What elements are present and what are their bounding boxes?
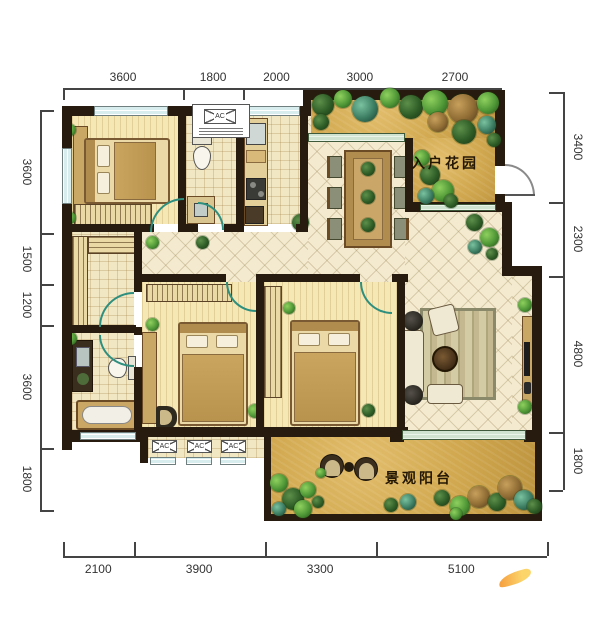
remote (524, 382, 531, 394)
dimension-label: 1500 (20, 245, 34, 272)
plant (380, 88, 400, 108)
plant (518, 400, 532, 414)
dimension-label: 2100 (85, 562, 112, 576)
garden-living-window (420, 204, 496, 211)
wardrobe (74, 204, 152, 225)
chair-seat (359, 463, 374, 479)
ledge-wall-left (140, 437, 148, 463)
plant (316, 468, 326, 478)
pouf (403, 311, 423, 331)
dimension-tick (134, 542, 136, 556)
window (186, 457, 212, 465)
plant (477, 92, 499, 114)
garden-wall-step (303, 90, 311, 116)
dimension-tick (63, 88, 65, 100)
plant (399, 95, 423, 119)
outer-wall-right (532, 266, 542, 442)
dimension-tick (549, 92, 563, 94)
dimension-label: 3000 (347, 70, 374, 84)
pillow (97, 172, 110, 194)
coffee-table (432, 346, 458, 372)
wall-row1-d (296, 224, 308, 232)
plant (478, 116, 496, 134)
cutting-board (246, 150, 266, 163)
plant (444, 194, 458, 208)
table-plant (361, 218, 375, 232)
plant (480, 228, 499, 247)
dimension-tick (243, 88, 245, 100)
window (62, 148, 72, 204)
plant (400, 494, 416, 510)
dimension-tick (265, 542, 267, 556)
wall-corridor-b (256, 274, 360, 282)
ac-unit: AC (204, 109, 236, 124)
blanket (114, 142, 156, 200)
dimension-label: 3600 (110, 70, 137, 84)
mirror (76, 347, 90, 367)
dimension-label: 4800 (571, 341, 585, 368)
dimension-tick (547, 542, 549, 556)
dimension-label: 2300 (571, 226, 585, 253)
plant (384, 498, 398, 512)
dimension-label: 5100 (448, 562, 475, 576)
ac-grill (199, 128, 243, 135)
dimension-label: 2000 (263, 70, 290, 84)
wall-closet-right-a (134, 232, 142, 292)
wall-closet-right-c (134, 367, 142, 437)
pillow (216, 335, 238, 348)
wall-bed2-bed3 (256, 282, 264, 429)
stool-seat (160, 410, 172, 425)
headboard (180, 324, 246, 333)
plant (518, 298, 532, 312)
wardrobe (88, 236, 136, 254)
dimension-tick (549, 432, 563, 434)
wardrobe (264, 286, 282, 398)
ac-unit: AC (152, 440, 177, 453)
burner (258, 191, 264, 197)
dimension-tick (376, 542, 378, 556)
dimension-line (563, 92, 565, 490)
dining-chair (394, 218, 409, 240)
plant (146, 236, 159, 249)
plant (450, 508, 462, 520)
wall-row1-b (184, 224, 198, 232)
plant (196, 236, 209, 249)
wall-row1-c (224, 224, 244, 232)
bedrooms-south-wall (140, 427, 408, 437)
dimension-label: 2700 (442, 70, 469, 84)
ac-unit-label: AC (228, 443, 240, 450)
dimension-tick (549, 490, 563, 492)
wall-bed3-living (397, 282, 405, 429)
entry-door-arc (505, 164, 535, 196)
plant (352, 96, 378, 122)
plant (428, 112, 448, 132)
ac-unit-label: AC (159, 443, 171, 450)
pillow (97, 145, 110, 167)
plant (487, 133, 501, 147)
wall-row1-a (62, 224, 154, 232)
plant (300, 482, 316, 498)
tub-basin (82, 406, 132, 424)
ac-unit: AC (221, 440, 246, 453)
dimension-label: 3900 (186, 562, 213, 576)
ac-unit: AC (187, 440, 212, 453)
wardrobe (72, 236, 88, 326)
dimension-label: 1800 (20, 466, 34, 493)
balcony-sliding-window (402, 430, 526, 440)
dimension-tick (40, 448, 54, 450)
window (94, 106, 168, 116)
dimension-tick (549, 276, 563, 278)
side-table (344, 462, 354, 472)
plant (272, 502, 286, 516)
headboard (292, 322, 358, 331)
step-wall-v (502, 202, 512, 276)
bathtub (76, 400, 138, 430)
wardrobe (146, 284, 232, 302)
wicker-chair (354, 457, 378, 481)
bed-master (84, 138, 170, 204)
pillow (186, 335, 208, 348)
dimension-label: 3400 (571, 134, 585, 161)
plant (452, 120, 476, 144)
plant (294, 500, 312, 518)
plant (362, 404, 375, 417)
plant (146, 318, 159, 331)
window (248, 106, 300, 116)
plant (312, 496, 324, 508)
dimension-label: 1200 (20, 292, 34, 319)
plant (466, 214, 483, 231)
bed2 (178, 322, 248, 426)
entry-door-leaf (505, 194, 535, 196)
plant (434, 490, 450, 506)
pouf (403, 385, 423, 405)
dining-chair (327, 187, 342, 209)
table-plant (361, 190, 375, 204)
plant (468, 240, 482, 254)
dining-chair (327, 218, 342, 240)
plant (527, 499, 542, 514)
window (80, 432, 136, 440)
plant (283, 302, 295, 314)
plant (486, 248, 498, 260)
stool (156, 406, 177, 429)
dining-chair (327, 156, 342, 178)
dimension-line (63, 556, 547, 558)
ac-unit-label: AC (214, 113, 226, 120)
wall-kitchen-dining (300, 116, 308, 232)
burner (250, 182, 256, 188)
dimension-tick (40, 110, 54, 112)
plant (418, 188, 434, 204)
dimension-tick (40, 233, 54, 235)
dresser (142, 332, 157, 424)
bathroom-vanity (72, 340, 93, 392)
brand-swoosh-logo (497, 568, 533, 589)
loveseat (427, 384, 463, 404)
ac-unit-label: AC (194, 443, 206, 450)
dimension-tick (40, 284, 54, 286)
dimension-tick (40, 325, 54, 327)
plant (313, 114, 329, 130)
chair-seat (325, 460, 340, 476)
wall-corridor-a (140, 274, 226, 282)
stove (246, 178, 266, 200)
table-plant (361, 162, 375, 176)
appliance (245, 206, 264, 224)
dimension-tick (183, 88, 185, 100)
tv (524, 342, 530, 376)
dimension-label: 3600 (20, 374, 34, 401)
entrance-garden-label: 入户花园 (411, 153, 479, 173)
dimension-tick (40, 510, 54, 512)
plant (312, 94, 334, 116)
window (150, 457, 176, 465)
blanket (182, 354, 244, 422)
dimension-label: 1800 (571, 448, 585, 475)
pillow (298, 333, 320, 346)
dimension-tick (63, 542, 65, 556)
bed3 (290, 320, 360, 426)
garden-wall-left-low (405, 138, 413, 212)
dimension-label: 3300 (307, 562, 334, 576)
plant (468, 486, 490, 508)
dimension-label: 1800 (200, 70, 227, 84)
balcony-garden-label: 景观阳台 (385, 468, 453, 488)
floor-plan-canvas: 3600180020003000270021003900330051003600… (0, 0, 600, 617)
wall-corridor-c (392, 274, 408, 282)
window (220, 457, 246, 465)
headboard (86, 140, 95, 202)
garden-dining-window (308, 133, 405, 142)
dimension-tick (549, 202, 563, 204)
dimension-label: 3600 (20, 158, 34, 185)
plant (334, 90, 352, 108)
pillow (328, 333, 350, 346)
blanket (294, 352, 356, 422)
toiletries (77, 373, 89, 385)
